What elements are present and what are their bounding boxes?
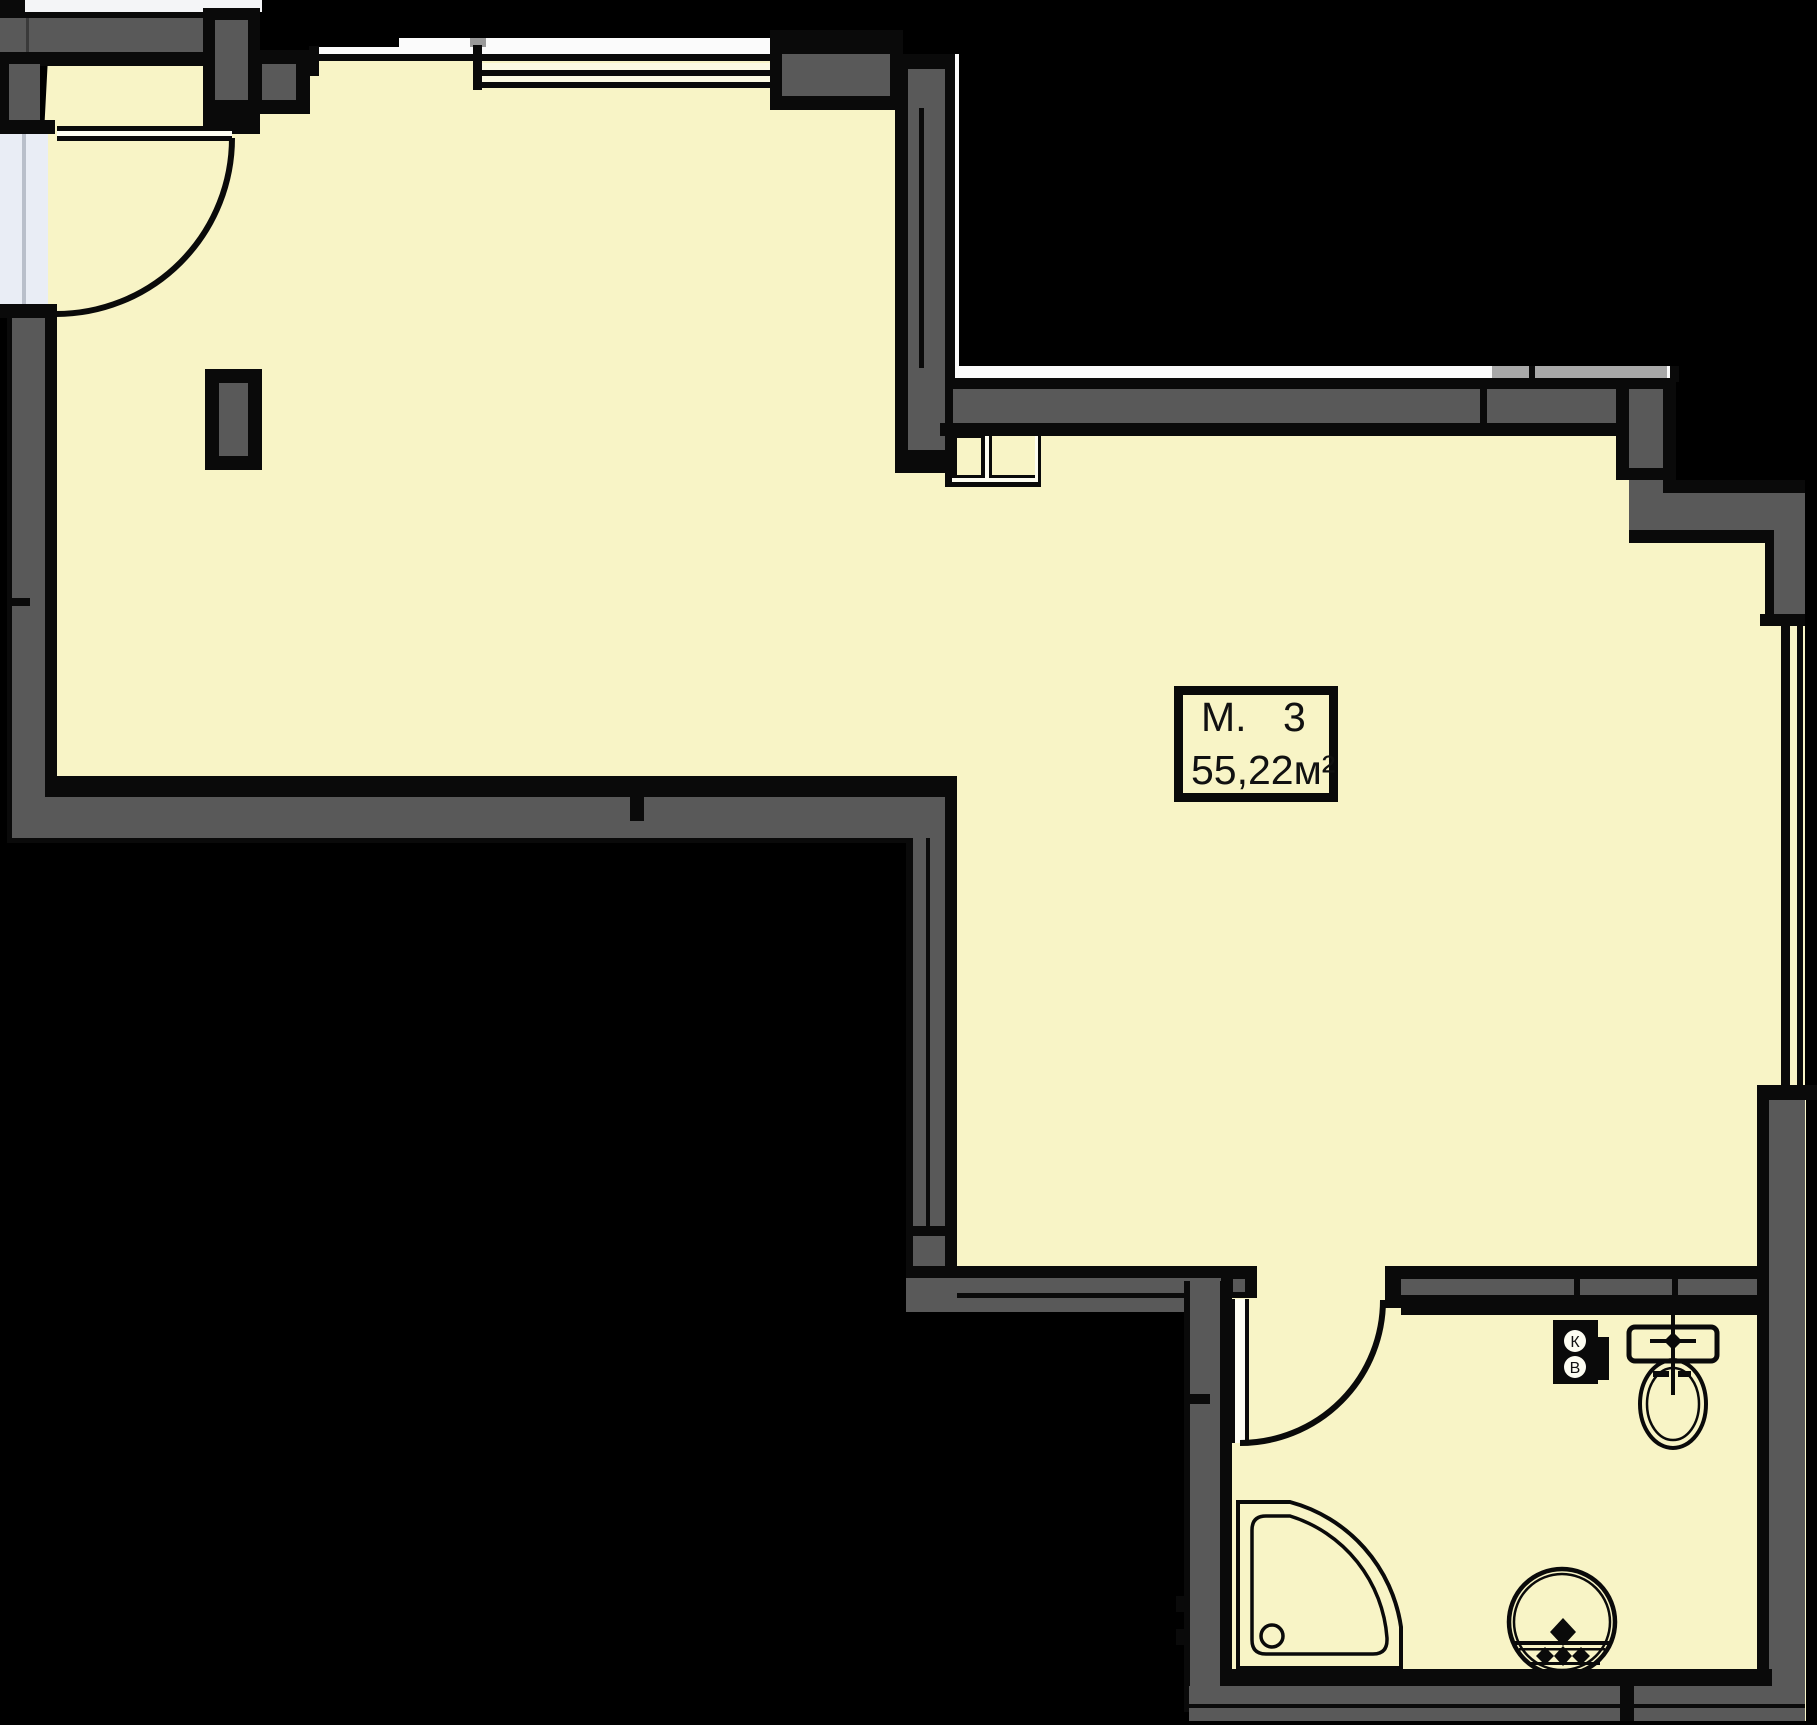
svg-text:3: 3 <box>1283 694 1306 740</box>
svg-text:К: К <box>1570 1334 1580 1351</box>
svg-text:В: В <box>1570 1360 1581 1377</box>
svg-text:М.: М. <box>1201 694 1247 740</box>
svg-text:55,22м²: 55,22м² <box>1191 747 1335 793</box>
